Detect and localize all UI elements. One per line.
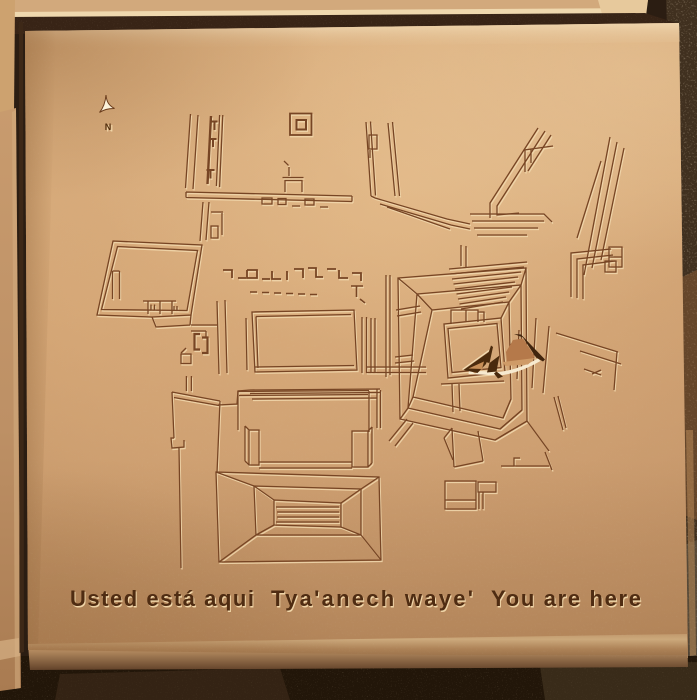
- svg-text:N: N: [105, 122, 112, 132]
- svg-text:You are here: You are here: [491, 586, 641, 611]
- svg-text:Usted está aqui: Usted está aqui: [70, 586, 254, 611]
- svg-text:Tya'anech waye': Tya'anech waye': [271, 586, 473, 611]
